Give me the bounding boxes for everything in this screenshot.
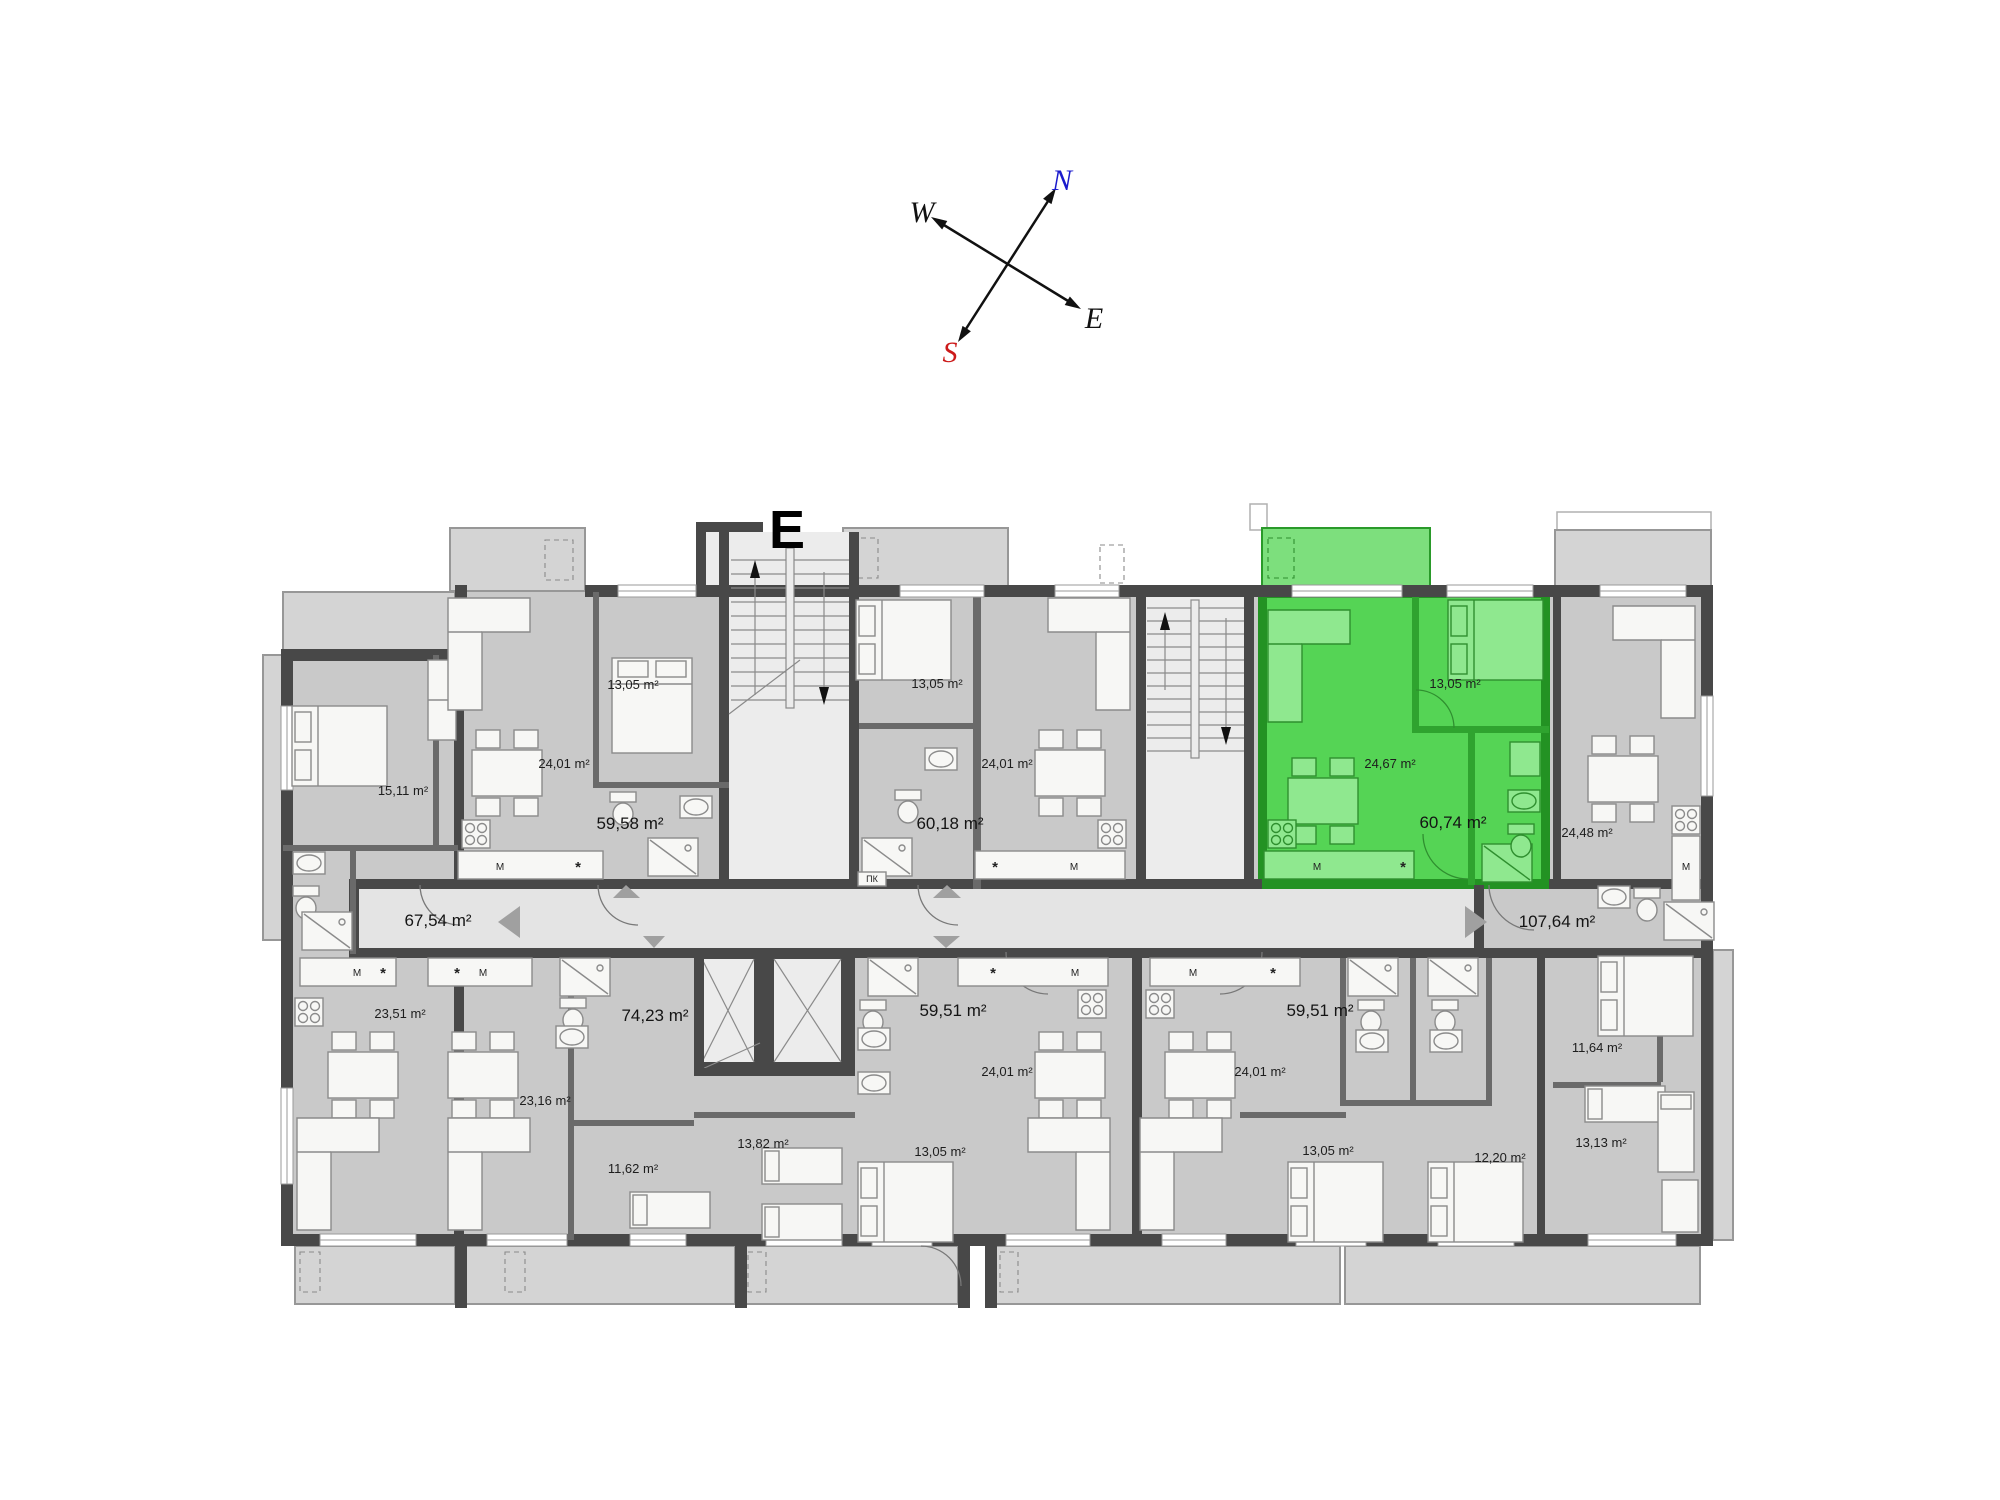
floor-plan-drawing: M * * M M * M M * * M * M M * ПК 15,11 m… <box>0 0 2000 1500</box>
shower <box>1348 958 1398 996</box>
room-label: 24,01 m² <box>538 756 590 771</box>
toilet <box>1358 1000 1384 1033</box>
washer-label: M <box>353 968 361 979</box>
washer-label: M <box>1189 968 1197 979</box>
sink <box>1508 790 1540 812</box>
compass-east-label: E <box>1084 302 1103 335</box>
balcony-bottom-2 <box>460 1246 735 1304</box>
armchair <box>1662 1180 1698 1232</box>
pk-label: ПК <box>866 874 878 884</box>
unit-label: 60,18 m² <box>916 814 983 833</box>
room-label: 13,82 m² <box>737 1136 789 1151</box>
room-label: 13,05 m² <box>607 677 659 692</box>
sink <box>858 1072 890 1094</box>
balcony-bottom-1 <box>295 1246 455 1304</box>
room-label: 12,20 m² <box>1474 1150 1526 1165</box>
cooktop <box>462 820 490 848</box>
double-bed <box>1448 600 1543 680</box>
room-label: 24,01 m² <box>981 756 1033 771</box>
shower <box>1664 902 1714 940</box>
unit-label: 59,51 m² <box>1286 1001 1353 1020</box>
double-bed <box>292 706 387 786</box>
washer-label: M <box>496 862 504 873</box>
toilet <box>1508 824 1534 857</box>
unit-label: 59,58 m² <box>596 814 663 833</box>
dishwasher-label: * <box>380 965 386 982</box>
bath-cabinet <box>1510 742 1540 776</box>
room-label: 23,51 m² <box>374 1006 426 1021</box>
shower <box>868 958 918 996</box>
dishwasher-label: * <box>990 965 996 982</box>
compass-rose: N W E S <box>910 164 1104 369</box>
cooktop <box>1268 820 1296 848</box>
room-label: 24,48 m² <box>1561 825 1613 840</box>
shower <box>1428 958 1478 996</box>
room-label: 24,01 m² <box>981 1064 1033 1079</box>
terrace-unit-107-64 <box>1555 530 1711 590</box>
sink <box>293 852 325 874</box>
single-bed <box>630 1192 710 1228</box>
room-label: 13,13 m² <box>1575 1135 1627 1150</box>
unit-label: 67,54 m² <box>404 911 471 930</box>
room-label: 24,01 m² <box>1234 1064 1286 1079</box>
washer-label: M <box>1070 862 1078 873</box>
single-bed <box>762 1204 842 1240</box>
unit-label: 60,74 m² <box>1419 813 1486 832</box>
toilet <box>1634 888 1660 921</box>
dishwasher-label: * <box>1400 859 1406 876</box>
dishwasher-label: * <box>1270 965 1276 982</box>
sink <box>925 748 957 770</box>
double-bed <box>1288 1162 1383 1242</box>
unit-label: 107,64 m² <box>1519 912 1596 931</box>
floor-plan-page: M * * M M * M M * * M * M M * ПК 15,11 m… <box>0 0 2000 1500</box>
balcony-bottom-3 <box>740 1246 958 1304</box>
sink <box>556 1026 588 1048</box>
kitchen-counter <box>1150 958 1300 986</box>
room-label: 23,16 m² <box>519 1093 571 1108</box>
balcony-west <box>263 655 283 940</box>
cooktop <box>1098 820 1126 848</box>
highlighted-unit[interactable] <box>1258 528 1550 889</box>
compass-we-axis <box>939 222 1073 304</box>
compass-west-label: W <box>910 196 938 229</box>
shower <box>862 838 912 876</box>
sink <box>1598 886 1630 908</box>
washer-label: M <box>1071 968 1079 979</box>
sink <box>1430 1030 1462 1052</box>
corridor <box>355 885 1480 952</box>
terrace-unit-60-18 <box>843 528 1008 592</box>
room-label: 24,67 m² <box>1364 756 1416 771</box>
washer-label: M <box>479 968 487 979</box>
toilet <box>1432 1000 1458 1033</box>
shower <box>648 838 698 876</box>
room-label: 13,05 m² <box>914 1144 966 1159</box>
dishwasher-label: * <box>992 859 998 876</box>
building-letter: E <box>769 500 805 560</box>
double-bed <box>612 658 692 753</box>
shower <box>302 912 352 950</box>
cooktop <box>295 998 323 1026</box>
cooktop <box>1078 990 1106 1018</box>
balcony-bottom-5 <box>1345 1246 1700 1304</box>
unit-label: 59,51 m² <box>919 1001 986 1020</box>
kitchen-counter <box>458 851 603 879</box>
room-label: 11,64 m² <box>1572 1040 1623 1055</box>
single-bed <box>1585 1086 1665 1122</box>
single-bed <box>762 1148 842 1184</box>
room-label: 11,62 m² <box>608 1161 659 1176</box>
room-label: 13,05 m² <box>911 676 963 691</box>
double-bed <box>856 600 951 680</box>
single-bed <box>1658 1092 1694 1172</box>
terrace-top-left <box>283 592 455 654</box>
balcony-bottom-4 <box>995 1246 1340 1304</box>
sink <box>1356 1030 1388 1052</box>
room-label: 13,05 m² <box>1302 1143 1354 1158</box>
compass-south-label: S <box>943 336 958 369</box>
balcony-east <box>1713 950 1733 1240</box>
room-label: 13,05 m² <box>1429 676 1481 691</box>
dishwasher-label: * <box>575 859 581 876</box>
room-label: 15,11 m² <box>378 783 429 798</box>
double-bed <box>858 1162 953 1242</box>
terrace-stair-west <box>450 528 585 591</box>
cooktop <box>1672 806 1700 834</box>
sink <box>680 796 712 818</box>
kitchen-counter <box>958 958 1108 986</box>
dishwasher-label: * <box>454 965 460 982</box>
shower <box>560 958 610 996</box>
sink <box>858 1028 890 1050</box>
kitchen-counter <box>1264 851 1414 879</box>
unit-label: 74,23 m² <box>621 1006 688 1025</box>
compass-north-label: N <box>1051 164 1074 197</box>
double-bed <box>1428 1162 1523 1242</box>
double-bed <box>1598 956 1693 1036</box>
cooktop <box>1146 990 1174 1018</box>
washer-label: M <box>1313 862 1321 873</box>
washer-label: M <box>1682 862 1690 873</box>
